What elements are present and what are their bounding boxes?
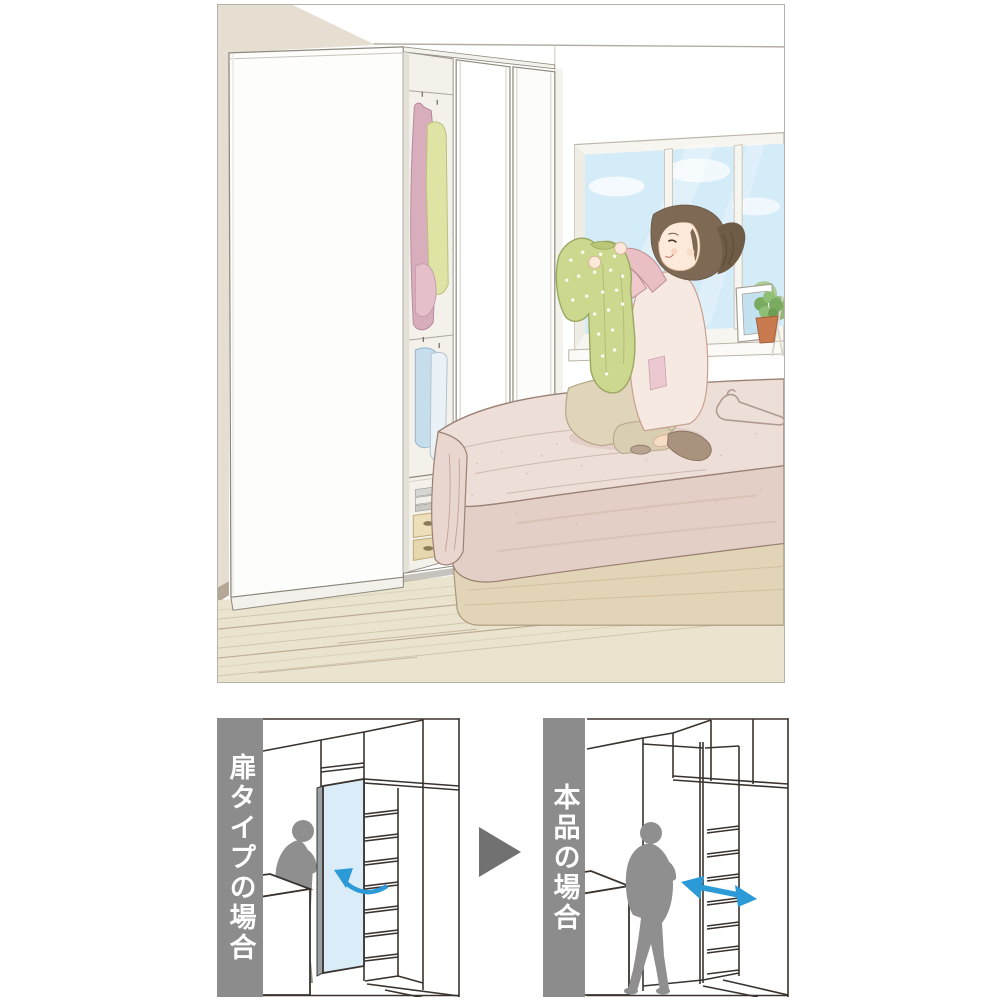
triangle-right-arrow-icon	[479, 827, 521, 877]
bedroom-scene	[218, 5, 784, 682]
diagram-door-type: 扉タイプの場合	[217, 718, 460, 997]
diagram-door-type-label: 扉タイプの場合	[227, 753, 254, 963]
diagram-this-product: 本品の場合	[543, 718, 790, 997]
bedroom-illustration	[217, 4, 785, 683]
woman-cardigan	[629, 272, 707, 431]
product-explainer-image: 扉タイプの場合	[0, 0, 1000, 1000]
diagram-door-type-banner: 扉タイプの場合	[217, 718, 263, 997]
diagram-this-product-label: 本品の場合	[551, 783, 578, 933]
diagram-this-product-banner: 本品の場合	[543, 718, 585, 997]
